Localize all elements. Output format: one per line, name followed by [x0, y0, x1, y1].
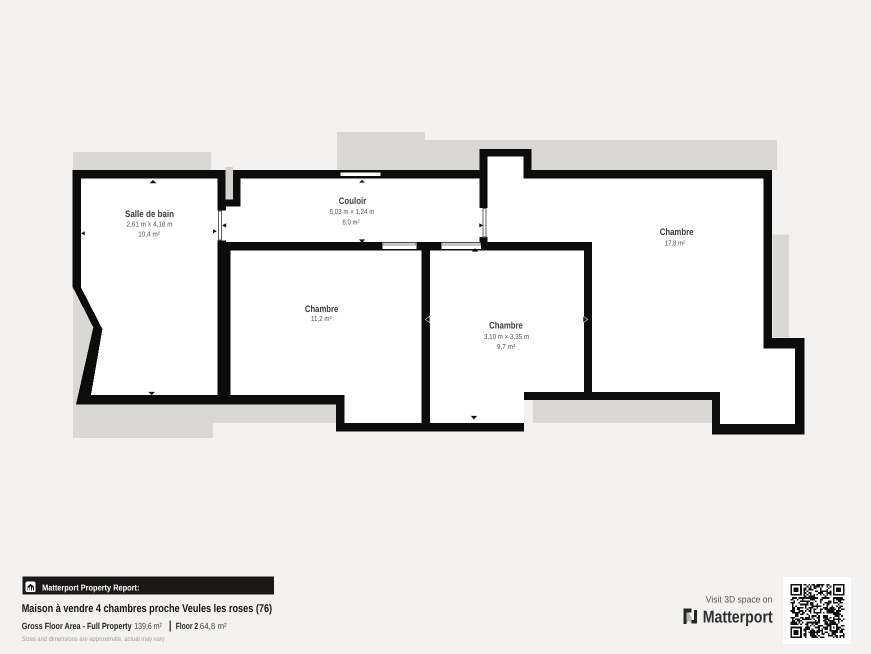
svg-text:5,03 m × 1,24 m: 5,03 m × 1,24 m	[330, 207, 375, 216]
svg-text:Couloir: Couloir	[339, 196, 367, 207]
svg-text:Visit 3D space on: Visit 3D space on	[706, 594, 773, 604]
svg-text:Maison à vendre 4 chambres pro: Maison à vendre 4 chambres proche Veules…	[22, 603, 273, 615]
svg-text:3,10 m × 3,35 m: 3,10 m × 3,35 m	[484, 332, 529, 341]
svg-text:6,0 m²: 6,0 m²	[343, 218, 361, 227]
svg-text:Chambre: Chambre	[660, 227, 694, 238]
svg-text:11,2 m²: 11,2 m²	[311, 314, 332, 323]
svg-text:139,6 m²: 139,6 m²	[134, 621, 162, 631]
svg-text:Sizes and dimensions are appro: Sizes and dimensions are approximate, ac…	[22, 636, 166, 643]
svg-text:10,4 m²: 10,4 m²	[138, 230, 160, 239]
svg-text:Chambre: Chambre	[489, 320, 523, 331]
svg-text:Floor 2: Floor 2	[176, 621, 198, 631]
svg-text:Matterport Property Report:: Matterport Property Report:	[42, 583, 140, 593]
svg-text:Gross Floor Area - Full Proper: Gross Floor Area - Full Property	[22, 621, 132, 631]
svg-text:2,61 m × 4,18 m: 2,61 m × 4,18 m	[127, 219, 173, 228]
svg-text:17,8 m²: 17,8 m²	[665, 239, 686, 248]
svg-text:9,7 m²: 9,7 m²	[497, 342, 516, 351]
svg-text:Matterport: Matterport	[703, 607, 773, 626]
svg-text:64,8 m²: 64,8 m²	[200, 621, 227, 631]
